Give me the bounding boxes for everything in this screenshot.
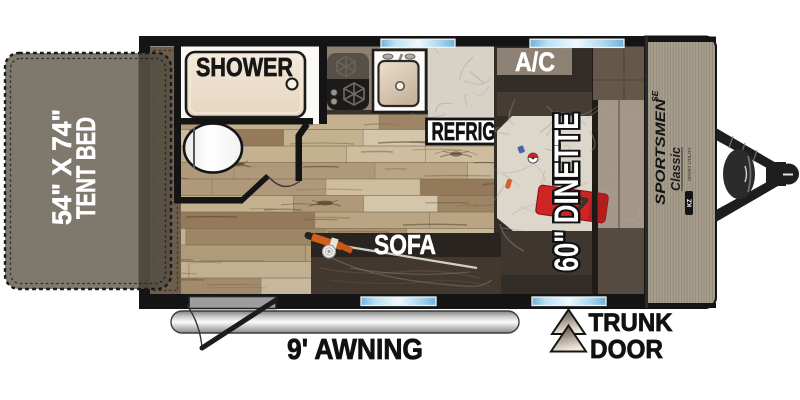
svg-text:9' AWNING: 9' AWNING bbox=[287, 334, 423, 366]
svg-text:TRUNK: TRUNK bbox=[589, 309, 673, 337]
svg-text:60" DINETTE: 60" DINETTE bbox=[548, 113, 586, 272]
svg-text:TENT BED: TENT BED bbox=[71, 117, 101, 219]
svg-text:A/C: A/C bbox=[515, 47, 555, 77]
svg-text:DOOR: DOOR bbox=[590, 334, 663, 364]
svg-text:Classic: Classic bbox=[668, 146, 683, 191]
svg-text:KZ: KZ bbox=[688, 199, 694, 207]
svg-text:REFRIG: REFRIG bbox=[432, 118, 496, 146]
svg-text:SHOWER: SHOWER bbox=[196, 52, 293, 82]
svg-text:SPORTSMEN: SPORTSMEN bbox=[653, 99, 668, 205]
svg-text:SE: SE bbox=[650, 90, 660, 102]
svg-text:SOFA: SOFA bbox=[374, 229, 436, 260]
svg-text:SPORT UTILITY: SPORT UTILITY bbox=[687, 147, 692, 181]
